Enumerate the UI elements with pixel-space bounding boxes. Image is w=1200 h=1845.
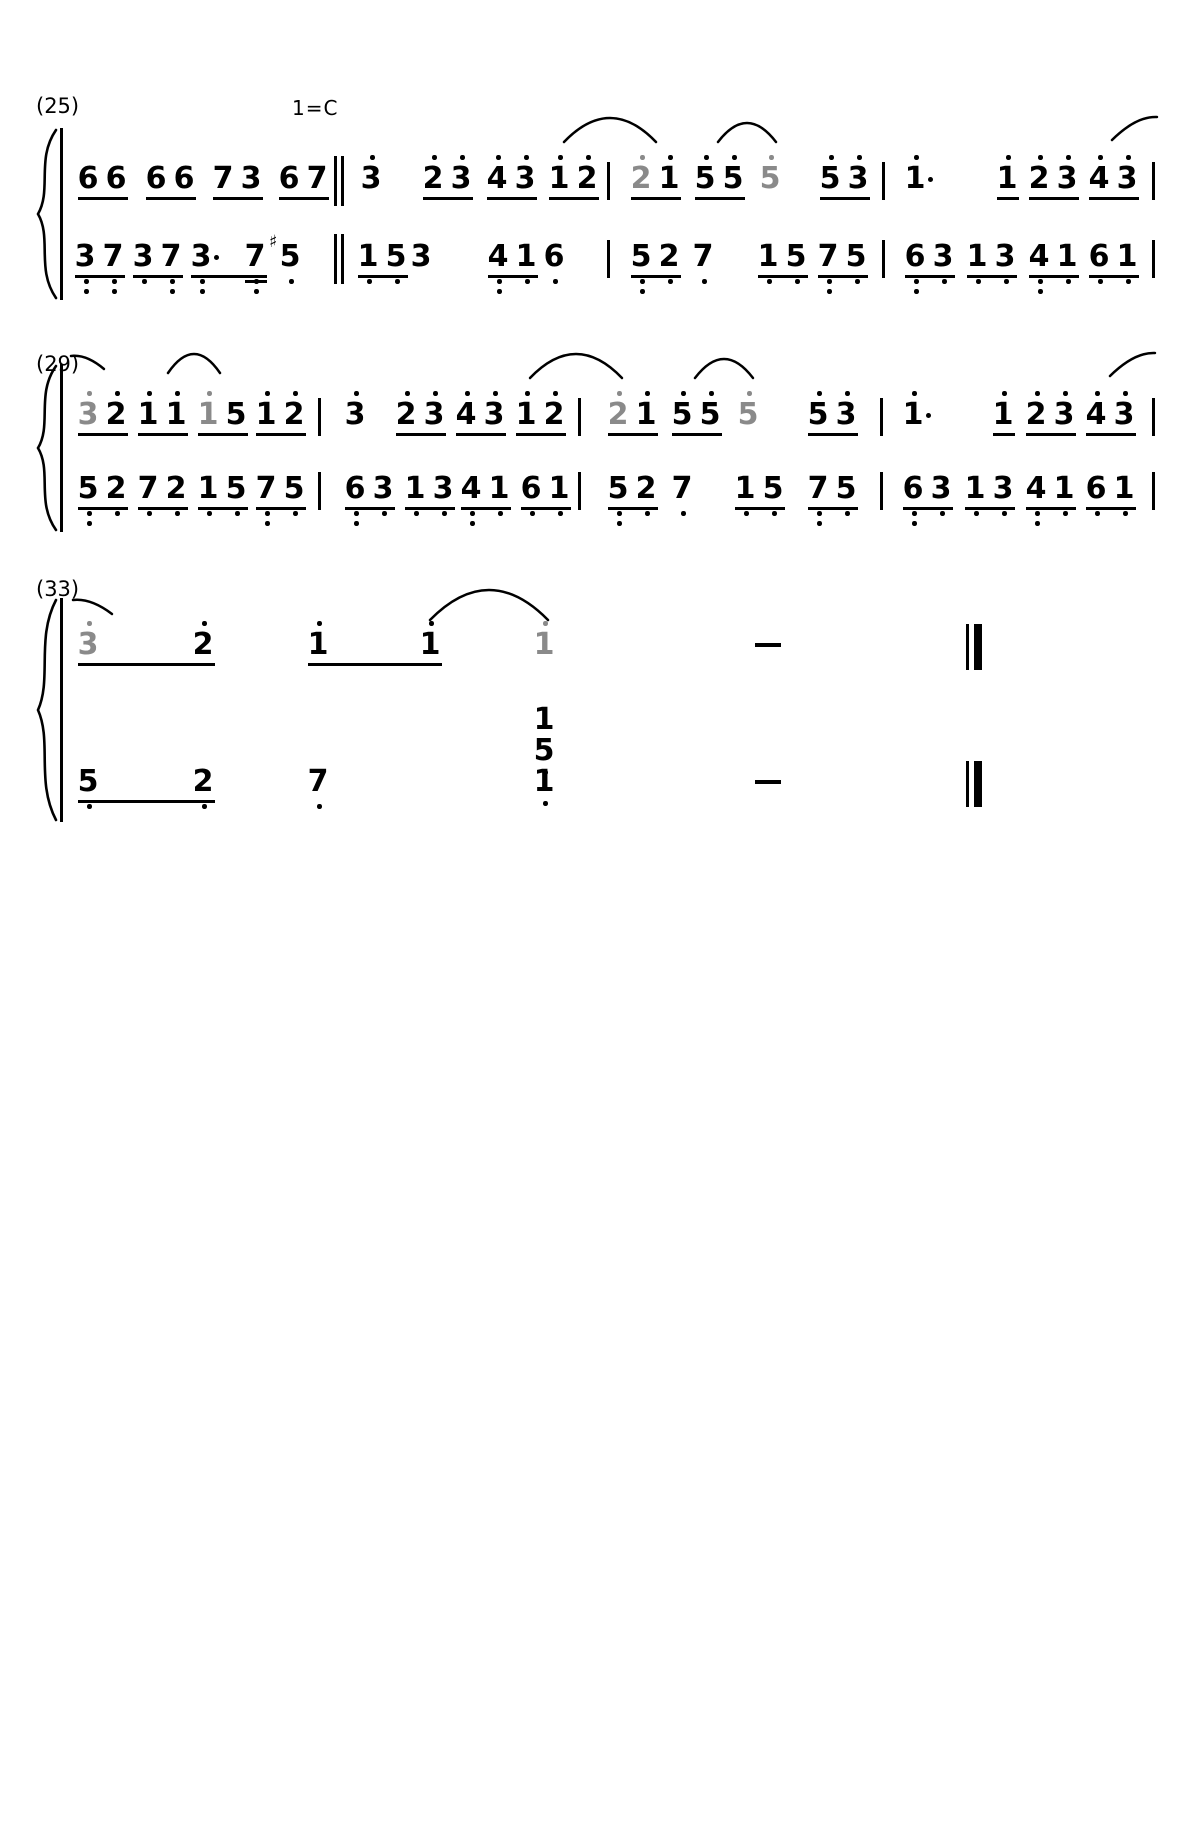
octave-dot-high [1038,155,1043,160]
note-digit: 1 [657,164,681,194]
tie-slur [1108,350,1156,378]
beam-underline [488,275,538,278]
octave-dot-low [442,511,447,516]
beam-underline [808,507,858,510]
octave-dot-low [617,521,622,526]
tie-slur [716,121,778,144]
octave-dot-high [558,155,563,160]
octave-dot-low [1098,279,1103,284]
note-digit: 5 [818,164,842,194]
note-digit: 2 [164,474,188,504]
note-digit: 5 [278,242,302,272]
beam-underline [191,275,267,278]
beam-underline [608,507,658,510]
octave-dot-high [769,155,774,160]
beam-underline [608,433,658,436]
note-digit: 1 [901,400,925,430]
note-digit: 3 [1055,164,1079,194]
octave-dot-low [681,511,686,516]
barline [578,398,581,436]
note-digit: 1 [356,242,380,272]
octave-dot-low [1126,279,1131,284]
beam-underline [213,197,263,200]
barline [607,162,610,200]
note-digit: 3 [76,630,100,660]
note-digit: 3 [131,242,155,272]
beam-underline [631,275,681,278]
octave-dot-high [645,391,650,396]
octave-dot-high [202,621,207,626]
octave-dot-high [465,391,470,396]
octave-dot-high [845,391,850,396]
octave-dot-high [912,391,917,396]
note-digit: 1 [733,474,757,504]
octave-dot-low [265,521,270,526]
beam-underline [997,197,1019,200]
note-digit: 1 [514,242,538,272]
beam-underline [516,433,566,436]
octave-dot-low [142,279,147,284]
octave-dot-high [354,391,359,396]
grand-staff-brace [30,598,60,822]
octave-dot-low [772,511,777,516]
note-digit: 2 [657,242,681,272]
octave-dot-low [974,511,979,516]
octave-dot-low [855,279,860,284]
octave-dot-low [395,279,400,284]
octave-dot-low [87,511,92,516]
note-digit: 3 [993,242,1017,272]
beam-underline [78,433,128,436]
note-digit: 2 [606,400,630,430]
note-digit: 6 [76,164,100,194]
note-digit: 5 [629,242,653,272]
octave-dot-low [640,289,645,294]
beam-underline [396,433,446,436]
note-digit: 7 [136,474,160,504]
beam-underline [78,197,128,200]
barline [880,472,883,510]
octave-dot-low [827,279,832,284]
beam-underline [672,433,722,436]
octave-dot-high [293,391,298,396]
note-digit: 1 [547,474,571,504]
note-digit: 5 [758,164,782,194]
note-digit: 5 [670,400,694,430]
octave-dot-high [1098,155,1103,160]
note-digit: 1 [1055,242,1079,272]
note-digit: 3 [846,164,870,194]
octave-dot-low [553,279,558,284]
octave-dot-high [1126,155,1131,160]
beam-underline [1029,275,1079,278]
tie-slur [166,352,222,375]
octave-dot-high [87,621,92,626]
octave-dot-high [1063,391,1068,396]
octave-dot-low [817,511,822,516]
note-digit: 1 [254,400,278,430]
final-barline [966,624,969,670]
barline [1152,472,1155,510]
octave-dot-high [433,391,438,396]
beam-underline [993,433,1015,436]
note-digit: 1 [403,474,427,504]
octave-dot-low [1002,511,1007,516]
final-barline [974,624,982,670]
sheet-music-page: (25)1=C666673673234312215555311234337373… [0,0,1200,1845]
beam-underline [1026,507,1076,510]
octave-dot-low [1038,289,1043,294]
octave-dot-low [827,289,832,294]
beam-underline [549,197,599,200]
note-digit: 3 [409,242,433,272]
note-digit: 1 [1115,242,1139,272]
double-barline [341,234,344,284]
note-digit: 5 [844,242,868,272]
barline [578,472,581,510]
note-digit: 5 [834,474,858,504]
octave-dot-high [525,391,530,396]
note-digit: 1 [487,474,511,504]
note-digit: 7 [306,767,330,797]
barline [1152,398,1155,436]
octave-dot-low [530,511,535,516]
octave-dot-low [914,289,919,294]
note-digit: 5 [784,242,808,272]
note-digit: 5 [76,767,100,797]
note-digit: 3 [1112,400,1136,430]
beam-underline [695,197,745,200]
note-digit: 1 [547,164,571,194]
double-barline [334,156,337,206]
barline [882,162,885,200]
beam-underline [1029,197,1079,200]
note-digit: 4 [485,164,509,194]
beam-underline [1086,433,1136,436]
beam-underline [198,507,248,510]
note-digit: 5 [384,242,408,272]
note-digit: 6 [542,242,566,272]
note-digit: 7 [806,474,830,504]
grand-staff-brace [30,128,60,300]
sharp-accidental: ♯ [269,234,277,251]
octave-dot-low [202,804,207,809]
octave-dot-low [170,279,175,284]
beam-underline [487,197,537,200]
octave-dot-high [817,391,822,396]
octave-dot-low [147,511,152,516]
beam-underline [1089,275,1139,278]
octave-dot-high [405,391,410,396]
note-digit: 3 [1052,400,1076,430]
note-digit: 2 [394,400,418,430]
barline [882,240,885,278]
note-digit: 1 [756,242,780,272]
octave-dot-high [1095,391,1100,396]
beam-underline [358,275,408,278]
note-digit: 4 [459,474,483,504]
note-digit: 4 [1027,242,1051,272]
octave-dot-low [1066,279,1071,284]
octave-dot-low [1035,521,1040,526]
beam-underline [75,275,125,278]
note-digit: 5 [606,474,630,504]
octave-dot-low [668,279,673,284]
note-digit: 1 [196,400,220,430]
note-digit: 6 [519,474,543,504]
octave-dot-high [617,391,622,396]
barline [1152,240,1155,278]
beam-underline [905,275,955,278]
note-digit: 1 [634,400,658,430]
octave-dot-high [732,155,737,160]
note-digit: 3 [834,400,858,430]
chord-note-digit: 1 [532,767,556,797]
barline [1152,162,1155,200]
final-barline [974,761,982,807]
note-digit: 3 [931,242,955,272]
octave-dot-high [1066,155,1071,160]
chord-note-digit: 1 [532,705,556,735]
beam-underline [631,197,681,200]
note-digit: 2 [191,767,215,797]
note-digit: 1 [164,400,188,430]
note-digit: 2 [421,164,445,194]
note-digit: 3 [929,474,953,504]
note-digit: 1 [1052,474,1076,504]
octave-dot-low [1004,279,1009,284]
note-digit: 2 [575,164,599,194]
beam-underline [198,433,248,436]
note-digit: 1 [1112,474,1136,504]
octave-dot-high [586,155,591,160]
octave-dot-low [1095,511,1100,516]
chord-note-digit: 5 [532,736,556,766]
octave-dot-low [112,289,117,294]
beam-underline [758,275,808,278]
octave-dot-low [354,511,359,516]
note-digit: 2 [104,400,128,430]
note-digit: 3 [189,242,213,272]
octave-dot-high [1035,391,1040,396]
octave-dot-low [87,804,92,809]
beam-underline [256,507,306,510]
beam-underline [345,507,395,510]
octave-dot-high [681,391,686,396]
octave-dot-low [940,511,945,516]
key-signature-label: 1=C [292,96,338,120]
octave-dot-low [525,279,530,284]
note-digit: 2 [1024,400,1048,430]
barline [318,398,321,436]
note-digit: 5 [736,400,760,430]
barline [880,398,883,436]
note-digit: 3 [449,164,473,194]
barline [607,240,610,278]
note-digit: 5 [721,164,745,194]
beam-underline [1026,433,1076,436]
octave-dot-low [498,511,503,516]
octave-dot-low [497,289,502,294]
note-digit: 4 [1024,474,1048,504]
note-digit: 2 [542,400,566,430]
beam-underline [423,197,473,200]
octave-dot-low [543,801,548,806]
octave-dot-low [558,511,563,516]
tie-slur [70,352,106,371]
note-digit: 3 [422,400,446,430]
note-digit: 7 [305,164,329,194]
beam-underline [1089,197,1139,200]
beam-underline [133,275,183,278]
system-start-line [60,598,63,822]
note-digit: 7 [691,242,715,272]
note-digit: 1 [196,474,220,504]
octave-dot-high [175,391,180,396]
note-digit: 4 [454,400,478,430]
octave-dot-low [200,279,205,284]
beam-underline [521,507,571,510]
octave-dot-low [1063,511,1068,516]
octave-dot-low [115,511,120,516]
note-digit: 2 [191,630,215,660]
note-digit: 5 [224,474,248,504]
note-digit: 7 [816,242,840,272]
note-digit: 3 [371,474,395,504]
octave-dot-low [175,511,180,516]
note-digit: 7 [101,242,125,272]
octave-dot-low [235,511,240,516]
augmentation-dot [926,413,931,418]
note-digit: 7 [243,242,267,272]
note-digit: 1 [418,630,442,660]
beam-underline [818,275,868,278]
beam-underline [78,800,215,803]
note-digit: 7 [211,164,235,194]
octave-dot-low [645,511,650,516]
octave-dot-low [702,279,707,284]
double-beam-underline [245,280,267,283]
note-digit: 5 [698,400,722,430]
augmentation-dot [928,177,933,182]
octave-dot-low [289,279,294,284]
octave-dot-high [640,155,645,160]
note-digit: 6 [104,164,128,194]
octave-dot-high [370,155,375,160]
octave-dot-low [1123,511,1128,516]
note-digit: 1 [995,164,1019,194]
octave-dot-high [265,391,270,396]
beam-underline [456,433,506,436]
note-digit: 3 [991,474,1015,504]
octave-dot-high [747,391,752,396]
note-digit: 1 [965,242,989,272]
octave-dot-low [317,804,322,809]
octave-dot-high [704,155,709,160]
note-digit: 6 [1084,474,1108,504]
note-digit: 2 [104,474,128,504]
final-barline [966,761,969,807]
note-digit: 5 [761,474,785,504]
octave-dot-low [414,511,419,516]
note-digit: 3 [1115,164,1139,194]
note-digit: 2 [282,400,306,430]
octave-dot-high [524,155,529,160]
octave-dot-low [845,511,850,516]
note-digit: 1 [991,400,1015,430]
octave-dot-high [207,391,212,396]
beam-underline [1086,507,1136,510]
octave-dot-low [744,511,749,516]
tie-slur [1110,114,1158,142]
tie-slur [693,357,755,380]
tie-slur [562,116,658,144]
octave-dot-low [942,279,947,284]
octave-dot-low [640,279,645,284]
note-digit: 6 [903,242,927,272]
beam-underline [138,433,188,436]
note-digit: 6 [1087,242,1111,272]
octave-dot-low [207,511,212,516]
octave-dot-high [496,155,501,160]
note-digit: 5 [224,400,248,430]
octave-dot-low [254,289,259,294]
octave-dot-low [367,279,372,284]
note-digit: 7 [670,474,694,504]
octave-dot-high [87,391,92,396]
octave-dot-low [617,511,622,516]
tie-slur [428,588,550,622]
note-digit: 3 [343,400,367,430]
note-digit: 3 [513,164,537,194]
octave-dot-high [493,391,498,396]
octave-dot-high [1123,391,1128,396]
note-digit: 1 [136,400,160,430]
beam-underline [967,275,1017,278]
note-digit: 5 [76,474,100,504]
octave-dot-high [914,155,919,160]
sustain-dash [755,643,781,647]
octave-dot-high [1006,155,1011,160]
note-digit: 7 [159,242,183,272]
double-barline [341,156,344,206]
octave-dot-low [265,511,270,516]
octave-dot-low [914,279,919,284]
beam-underline [256,433,306,436]
grand-staff-brace [30,364,60,532]
note-digit: 5 [693,164,717,194]
note-digit: 6 [901,474,925,504]
octave-dot-low [293,511,298,516]
octave-dot-low [976,279,981,284]
octave-dot-high [668,155,673,160]
octave-dot-low [795,279,800,284]
beam-underline [279,197,329,200]
octave-dot-low [817,521,822,526]
octave-dot-low [200,289,205,294]
note-digit: 2 [634,474,658,504]
note-digit: 1 [903,164,927,194]
note-digit: 6 [277,164,301,194]
octave-dot-low [1035,511,1040,516]
note-digit: 3 [73,242,97,272]
beam-underline [138,507,188,510]
octave-dot-low [1038,279,1043,284]
octave-dot-low [87,521,92,526]
note-digit: 1 [306,630,330,660]
system-start-line [60,128,63,300]
beam-underline [78,507,128,510]
